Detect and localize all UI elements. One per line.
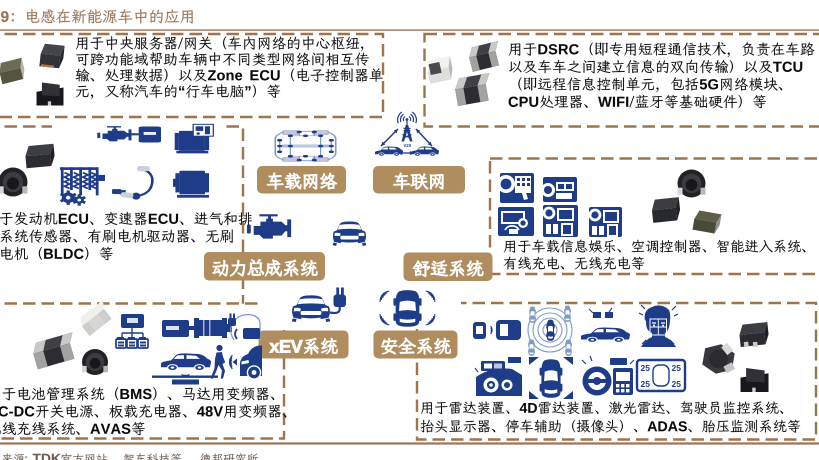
svg-text:25: 25 — [641, 379, 651, 389]
svg-text:25: 25 — [672, 363, 682, 373]
svg-text:25: 25 — [672, 379, 682, 389]
svg-text:25: 25 — [641, 363, 651, 373]
